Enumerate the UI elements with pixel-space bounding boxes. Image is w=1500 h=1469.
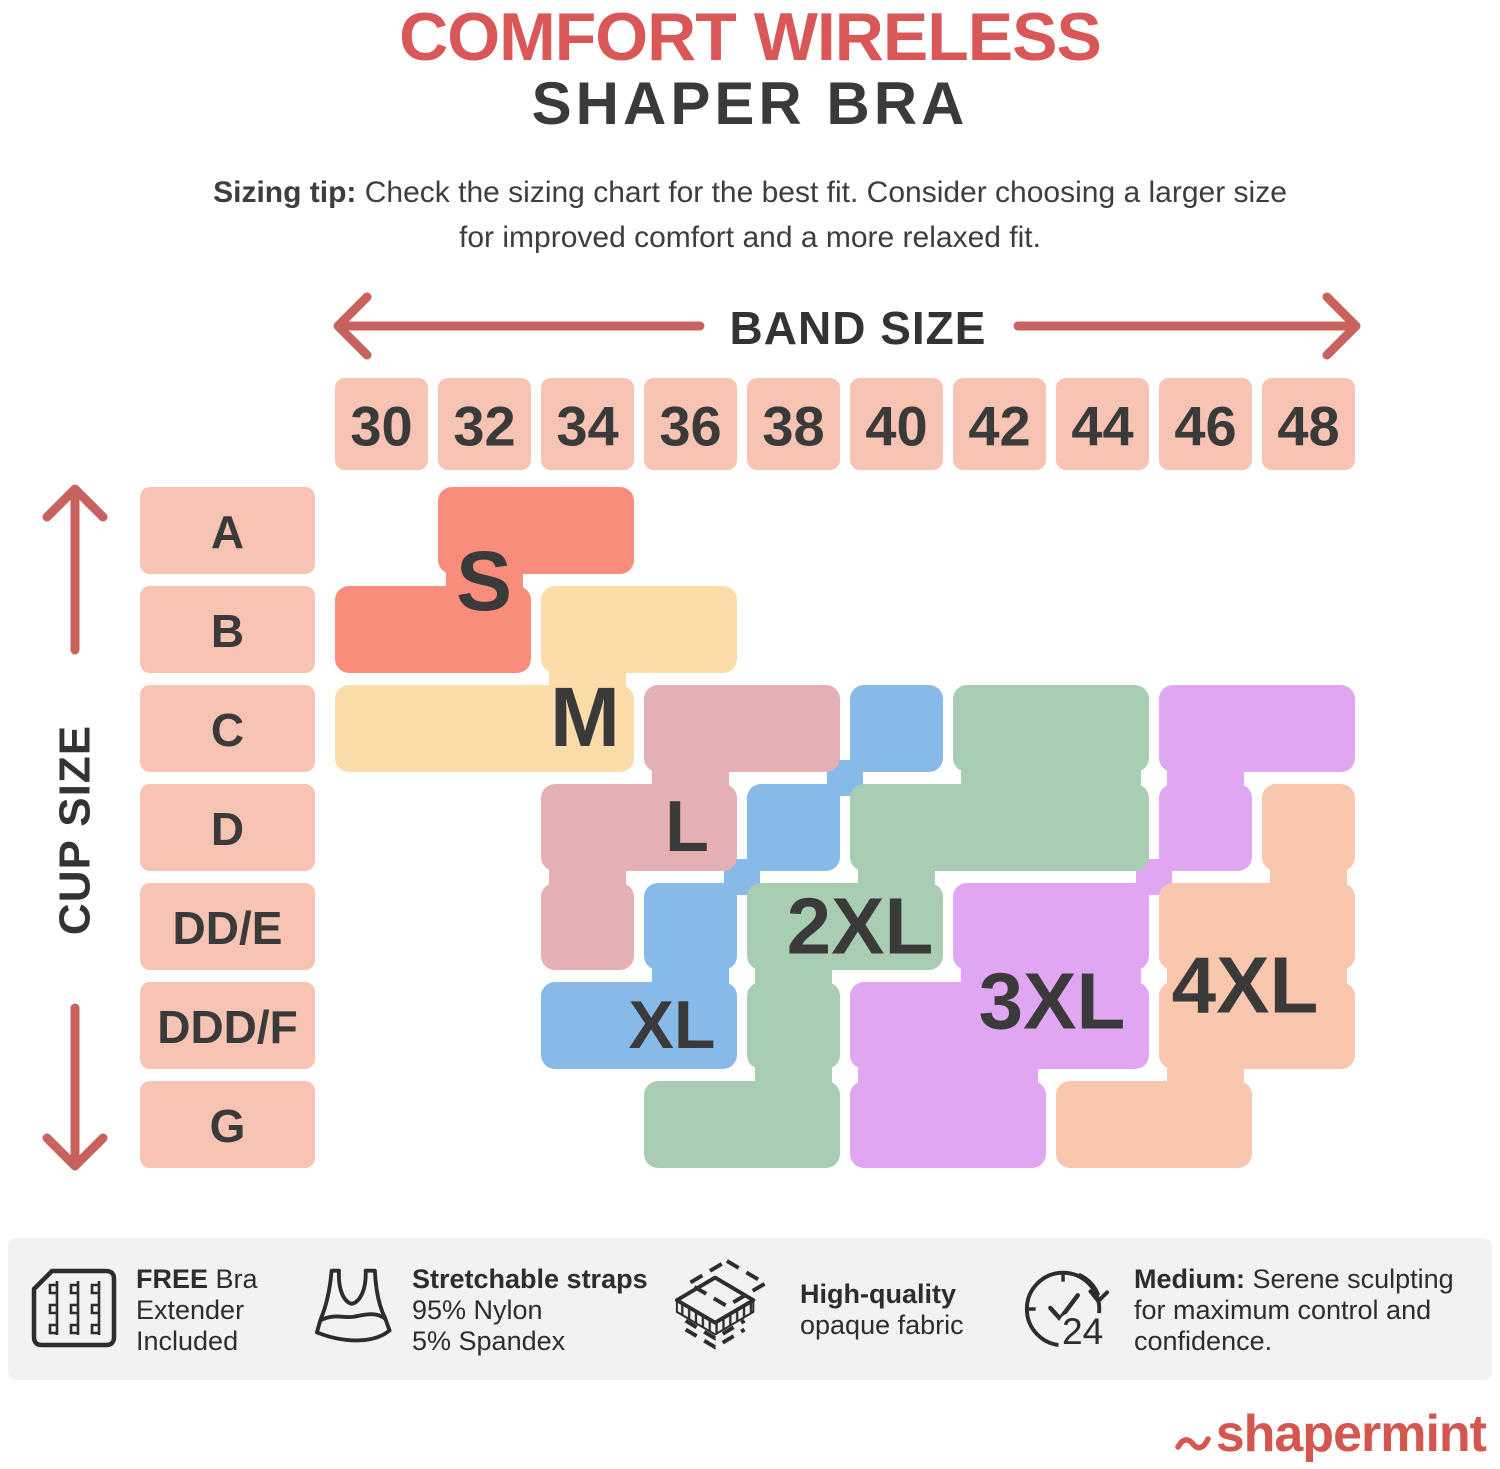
logo-squiggle-icon [1175, 1430, 1211, 1456]
features-bar: FREE BraExtenderIncludedStretchable stra… [8, 1238, 1492, 1380]
size-label-m: M [550, 670, 620, 764]
size-cells-xl-row-C [850, 685, 943, 772]
fabric-layers-icon [672, 1258, 770, 1361]
cup-size-value-A: A [211, 506, 244, 558]
feature-text-4: Medium: Serene sculptingfor maximum cont… [1134, 1264, 1454, 1357]
feature-line: Stretchable straps [412, 1264, 648, 1295]
size-cells-3xl-row-G [850, 1081, 1046, 1168]
svg-text:24: 24 [1062, 1310, 1103, 1352]
brand-logo: shapermint [1175, 1404, 1486, 1464]
cup-arrow-down-icon [47, 1008, 103, 1166]
size-cells-2xl-row-C [953, 685, 1149, 772]
bra-extender-icon [30, 1268, 118, 1353]
sizing-tip-bold: Sizing tip: [213, 176, 356, 209]
band-axis-title: BAND SIZE [730, 302, 987, 354]
cup-size-value-C: C [211, 704, 244, 756]
feature-line: Extender [136, 1295, 258, 1326]
sizing-tip-line2: for improved comfort and a more relaxed … [0, 215, 1500, 260]
cup-arrow-up-icon [47, 489, 103, 650]
band-arrow-right-icon [1018, 297, 1356, 355]
sizing-tip-line1: Sizing tip: Check the sizing chart for t… [0, 170, 1500, 215]
band-size-value-44: 44 [1071, 395, 1133, 458]
cup-size-value-DD-E: DD/E [173, 902, 283, 954]
product-title-line1: COMFORT WIRELESS [0, 6, 1500, 68]
band-size-value-38: 38 [762, 395, 824, 458]
feature-line: 95% Nylon [412, 1295, 648, 1326]
size-cells-l-row-DD-E [541, 883, 634, 970]
size-cells-xl-row-D [747, 784, 840, 871]
band-size-value-40: 40 [865, 395, 927, 458]
page-title: COMFORT WIRELESS SHAPER BRA [0, 6, 1500, 134]
band-size-value-42: 42 [968, 395, 1030, 458]
size-cells-2xl-row-G [644, 1081, 840, 1168]
size-cells-2xl-row-D [850, 784, 1149, 871]
cup-size-header: ABCDDD/EDDD/FG [140, 487, 315, 1168]
band-size-value-46: 46 [1174, 395, 1236, 458]
sizing-tip: Sizing tip: Check the sizing chart for t… [0, 170, 1500, 260]
feature-text-1: FREE BraExtenderIncluded [136, 1264, 258, 1357]
size-label-2xl: 2XL [787, 882, 934, 971]
feature-text-2: Stretchable straps95% Nylon5% Spandex [412, 1264, 648, 1357]
band-size-value-48: 48 [1277, 395, 1339, 458]
cup-size-value-DDD-F: DDD/F [157, 1001, 298, 1053]
band-size-value-34: 34 [556, 395, 618, 458]
size-cells-4xl-row-D [1262, 784, 1355, 871]
feature-line: 5% Spandex [412, 1326, 648, 1357]
product-title-line2: SHAPER BRA [0, 74, 1500, 134]
feature-line: FREE Bra [136, 1264, 258, 1295]
cup-size-value-B: B [211, 605, 244, 657]
cup-axis-title: CUP SIZE [51, 725, 100, 935]
sizing-tip-line1-rest: Check the sizing chart for the best fit.… [356, 176, 1286, 209]
band-size-value-36: 36 [659, 395, 721, 458]
size-label-s: S [456, 534, 512, 628]
size-label-xl: XL [629, 987, 716, 1063]
feature-line: opaque fabric [800, 1310, 964, 1341]
size-label-4xl: 4XL [1172, 941, 1319, 1030]
band-size-value-30: 30 [350, 395, 412, 458]
band-arrow-left-icon [338, 297, 700, 355]
brand-logo-text: shapermint [1216, 1404, 1486, 1464]
size-cells-2xl-row-DDD-F [747, 982, 840, 1069]
feature-line: Included [136, 1326, 258, 1357]
infographic-canvas: 30323436384042444648ABCDDD/EDDD/FGBAND S… [0, 0, 1500, 1469]
feature-line: High-quality [800, 1279, 964, 1310]
cup-size-value-D: D [211, 803, 244, 855]
cup-size-value-G: G [210, 1100, 246, 1152]
size-label-l: L [665, 787, 709, 867]
size-cells-3xl-row-D [1159, 784, 1252, 871]
bra-icon [304, 1264, 396, 1357]
feature-line: for maximum control and [1134, 1295, 1454, 1326]
size-cells-xl-row-DD-E [644, 883, 737, 970]
feature-text-3: High-qualityopaque fabric [800, 1279, 964, 1341]
size-cells-l-row-C [644, 685, 840, 772]
band-size-header: 30323436384042444648 [335, 378, 1355, 470]
size-cells-4xl-row-G [1056, 1081, 1252, 1168]
size-cells-m-row-B [541, 586, 737, 673]
feature-line: Medium: Serene sculpting [1134, 1264, 1454, 1295]
size-cells-3xl-row-C [1159, 685, 1355, 772]
band-size-value-32: 32 [453, 395, 515, 458]
clock-24-icon: 24 [1020, 1262, 1112, 1359]
size-label-3xl: 3XL [979, 957, 1126, 1046]
feature-line: confidence. [1134, 1326, 1454, 1357]
